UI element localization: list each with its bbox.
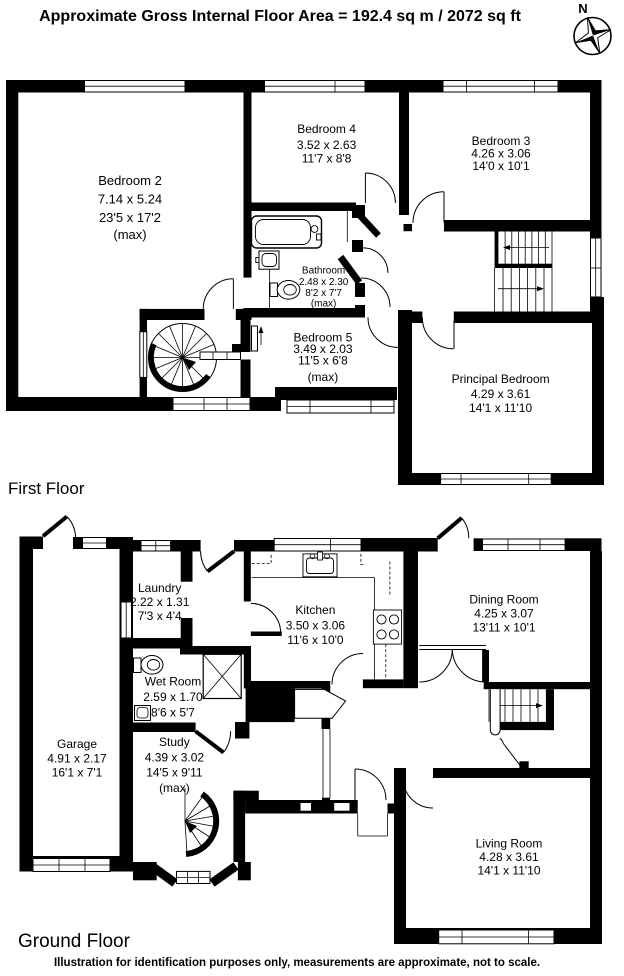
svg-text:(max): (max) [311, 299, 337, 310]
svg-text:Bedroom 2: Bedroom 2 [98, 173, 162, 188]
svg-text:Dining Room: Dining Room [469, 592, 538, 606]
svg-text:11'7 x 8'8: 11'7 x 8'8 [302, 152, 352, 166]
svg-text:8'2 x 7'7: 8'2 x 7'7 [305, 288, 342, 299]
svg-text:14'5 x 9'11: 14'5 x 9'11 [146, 766, 203, 780]
svg-text:Wet Room: Wet Room [145, 675, 201, 689]
svg-text:14'1 x 11'10: 14'1 x 11'10 [477, 863, 540, 877]
svg-text:(max): (max) [159, 781, 190, 795]
svg-text:Living Room: Living Room [476, 836, 543, 850]
svg-text:3.50 x 3.06: 3.50 x 3.06 [286, 618, 346, 632]
svg-text:16'1 x 7'1: 16'1 x 7'1 [52, 765, 103, 779]
svg-text:11'5 x 6'8: 11'5 x 6'8 [298, 354, 348, 368]
svg-text:3.52 x 2.63: 3.52 x 2.63 [297, 138, 357, 152]
svg-text:2.22 x 1.31: 2.22 x 1.31 [130, 595, 190, 609]
svg-text:(max): (max) [113, 227, 146, 242]
svg-text:Ground Floor: Ground Floor [18, 931, 131, 952]
svg-text:11'6 x 10'0: 11'6 x 10'0 [287, 633, 344, 647]
svg-text:Study: Study [159, 735, 190, 749]
svg-text:Bedroom 4: Bedroom 4 [297, 122, 356, 136]
svg-text:Garage: Garage [57, 737, 97, 751]
svg-text:23'5 x 17'2: 23'5 x 17'2 [99, 210, 161, 225]
svg-text:14'0 x 10'1: 14'0 x 10'1 [472, 159, 530, 173]
svg-text:7'3 x 4'4: 7'3 x 4'4 [138, 609, 182, 623]
svg-text:Principal Bedroom: Principal Bedroom [452, 372, 550, 386]
svg-text:Approximate Gross Internal Flo: Approximate Gross Internal Floor Area = … [39, 8, 521, 25]
svg-text:8'6 x 5'7: 8'6 x 5'7 [151, 706, 195, 720]
svg-text:4.91 x 2.17: 4.91 x 2.17 [47, 752, 107, 766]
svg-text:4.25 x 3.07: 4.25 x 3.07 [474, 607, 534, 621]
svg-text:Bathroom: Bathroom [302, 266, 345, 277]
svg-text:4.29 x 3.61: 4.29 x 3.61 [471, 387, 531, 401]
svg-text:N: N [578, 1, 587, 16]
svg-text:7.14 x 5.24: 7.14 x 5.24 [98, 192, 162, 207]
svg-text:14'1 x 11'10: 14'1 x 11'10 [469, 401, 532, 415]
svg-text:First Floor: First Floor [8, 479, 85, 498]
svg-text:Laundry: Laundry [138, 581, 181, 595]
svg-text:13'11 x 10'1: 13'11 x 10'1 [472, 621, 535, 635]
svg-text:2.59 x 1.70: 2.59 x 1.70 [143, 690, 203, 704]
svg-text:(max): (max) [308, 370, 339, 384]
svg-text:4.28 x 3.61: 4.28 x 3.61 [479, 850, 539, 864]
svg-text:Illustration for identificatio: Illustration for identification purposes… [54, 957, 540, 969]
svg-text:4.39 x 3.02: 4.39 x 3.02 [145, 750, 205, 764]
svg-text:2.48 x 2.30: 2.48 x 2.30 [299, 277, 349, 288]
svg-text:Kitchen: Kitchen [295, 603, 335, 617]
